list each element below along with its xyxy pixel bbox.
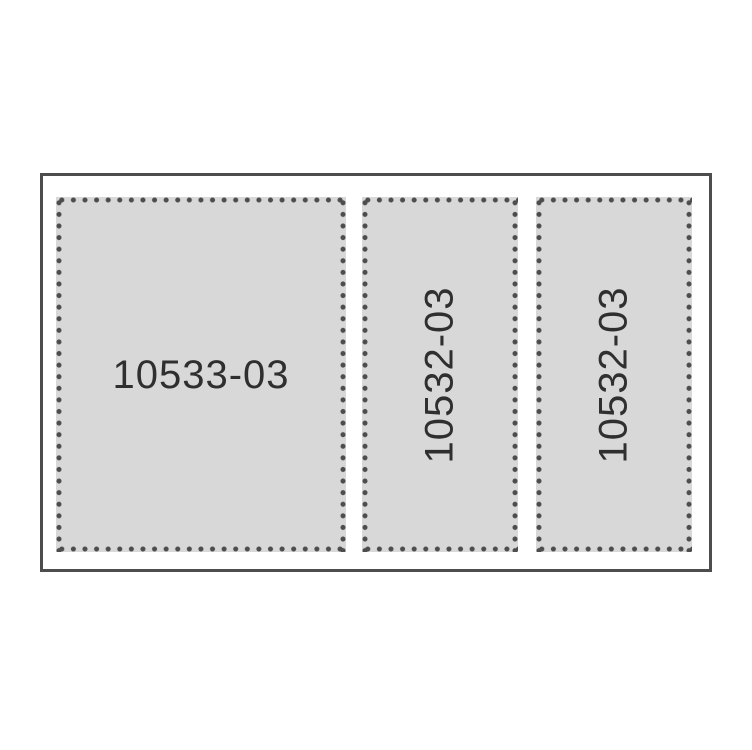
part-number-label: 10532-03 xyxy=(594,286,634,463)
diagram-canvas: 10533-03 10532-03 10532-03 xyxy=(0,0,752,750)
part-number-label: 10533-03 xyxy=(112,355,289,395)
part-number-label: 10532-03 xyxy=(420,286,460,463)
outer-frame: 10533-03 10532-03 10532-03 xyxy=(40,173,712,572)
panel-large: 10533-03 xyxy=(56,197,346,552)
panel-narrow-2: 10532-03 xyxy=(536,197,692,552)
panel-narrow-1: 10532-03 xyxy=(362,197,518,552)
